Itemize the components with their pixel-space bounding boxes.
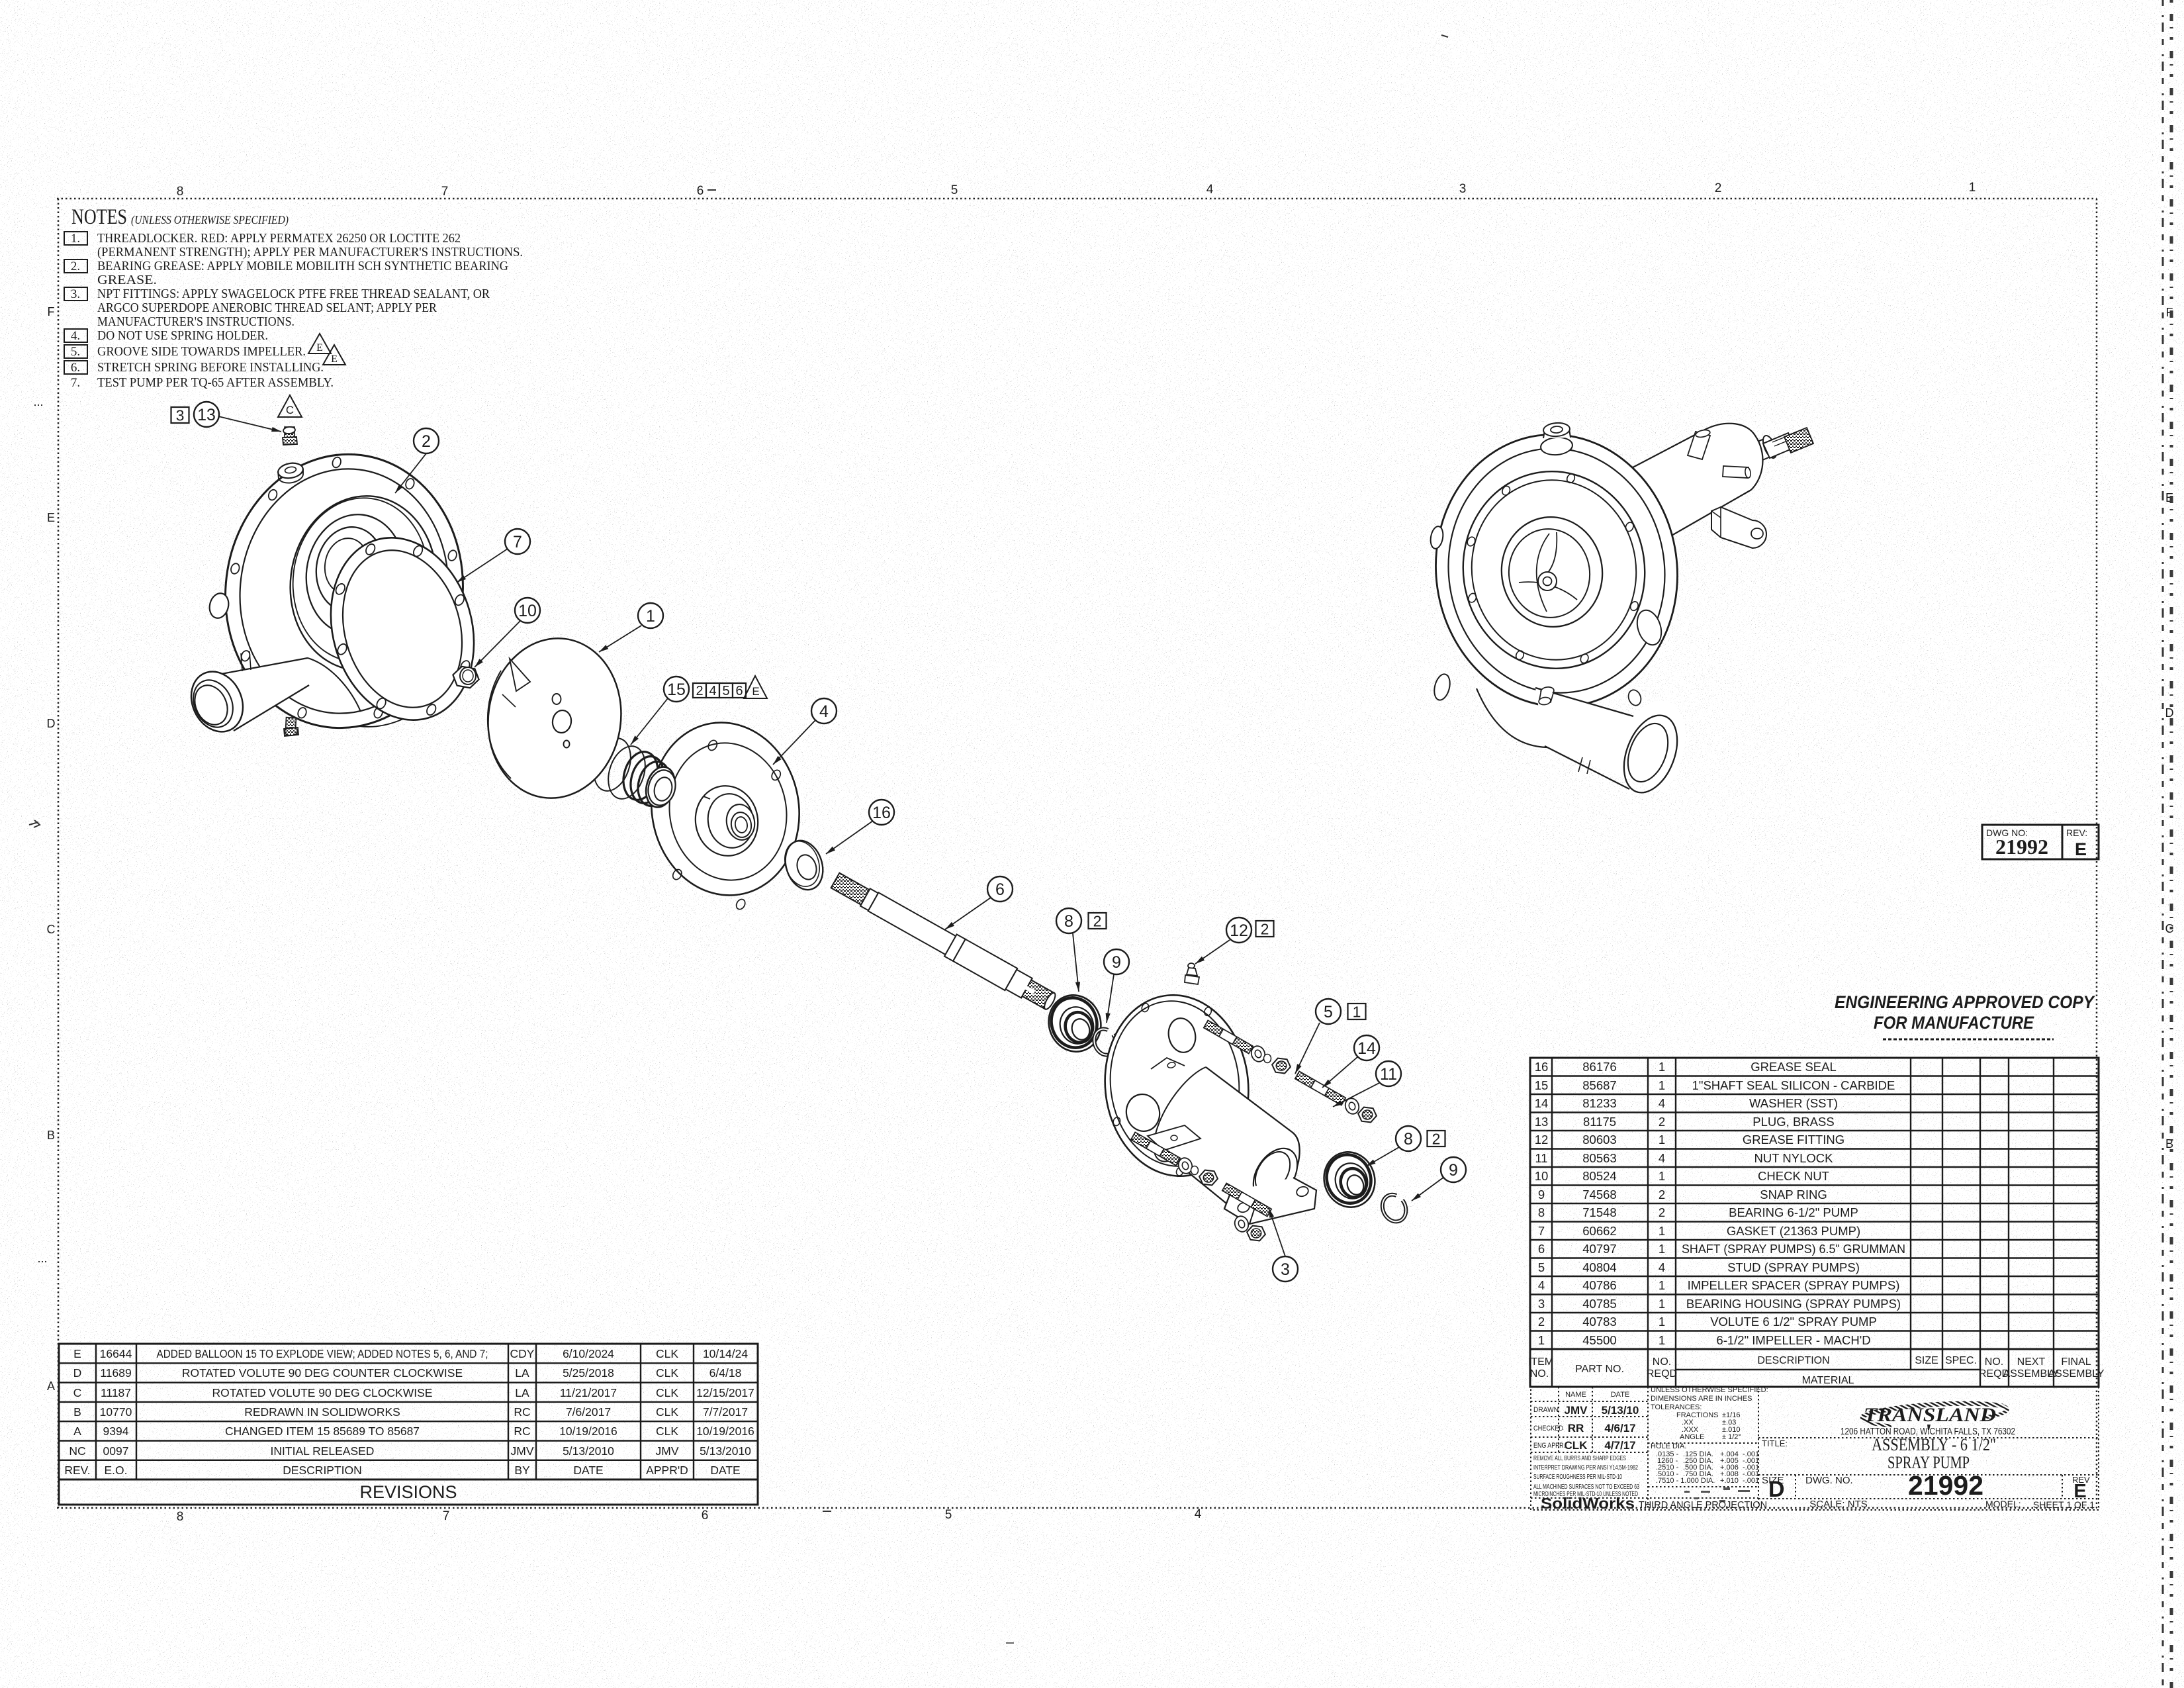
svg-text:6/4/18: 6/4/18 xyxy=(709,1366,742,1380)
svg-text:CLK: CLK xyxy=(656,1425,678,1438)
svg-text:D: D xyxy=(1768,1477,1785,1502)
svg-text:5.: 5. xyxy=(71,345,80,359)
svg-text:PLUG, BRASS: PLUG, BRASS xyxy=(1752,1115,1834,1129)
svg-text:74568: 74568 xyxy=(1582,1188,1616,1201)
svg-text:LA: LA xyxy=(515,1386,529,1399)
svg-text:8: 8 xyxy=(1404,1130,1413,1149)
svg-text:80524: 80524 xyxy=(1582,1169,1616,1183)
svg-text:16: 16 xyxy=(1535,1060,1549,1074)
svg-text:(UNLESS OTHERWISE SPECIFIED): (UNLESS OTHERWISE SPECIFIED) xyxy=(131,213,289,226)
svg-text:CLK: CLK xyxy=(656,1347,678,1360)
svg-text:3.: 3. xyxy=(71,287,80,301)
svg-text:DATE: DATE xyxy=(573,1464,603,1477)
svg-text:STUD (SPRAY PUMPS): STUD (SPRAY PUMPS) xyxy=(1727,1260,1860,1274)
svg-text:4: 4 xyxy=(1659,1096,1665,1110)
svg-text:GREASE SEAL: GREASE SEAL xyxy=(1751,1060,1837,1074)
svg-text:D: D xyxy=(47,717,56,730)
svg-text:80603: 80603 xyxy=(1582,1133,1616,1147)
svg-text:3: 3 xyxy=(1459,182,1467,196)
svg-text:7.: 7. xyxy=(71,376,80,390)
svg-text:NPT FITTINGS: APPLY SWAGELOCK: NPT FITTINGS: APPLY SWAGELOCK PTFE FREE … xyxy=(97,287,490,301)
svg-text:1: 1 xyxy=(1659,1224,1665,1238)
svg-text:6: 6 xyxy=(697,184,704,198)
svg-text:DATE: DATE xyxy=(1611,1391,1630,1399)
svg-text:INTERPRET DRAWING PER ANSI Y14: INTERPRET DRAWING PER ANSI Y14.5M-1982 xyxy=(1533,1464,1638,1472)
svg-text:11/21/2017: 11/21/2017 xyxy=(560,1386,617,1399)
svg-text:E.O.: E.O. xyxy=(104,1464,127,1477)
svg-text:5: 5 xyxy=(945,1508,952,1522)
svg-text:5: 5 xyxy=(951,183,958,197)
svg-text:3: 3 xyxy=(1538,1297,1545,1311)
svg-text:12: 12 xyxy=(1535,1133,1549,1147)
svg-text:ENGINEERING APPROVED COPY: ENGINEERING APPROVED COPY xyxy=(1835,992,2096,1012)
svg-text:NO.: NO. xyxy=(1985,1356,2003,1368)
svg-text:SCALE: NTS: SCALE: NTS xyxy=(1809,1499,1868,1510)
svg-text:1: 1 xyxy=(1659,1078,1665,1092)
svg-text:8: 8 xyxy=(177,1510,184,1524)
svg-text:12: 12 xyxy=(1230,921,1248,940)
svg-text:11: 11 xyxy=(1535,1151,1547,1165)
svg-text:1: 1 xyxy=(1353,1003,1361,1020)
svg-text:-.001: -.001 xyxy=(1743,1477,1759,1485)
svg-text:DESCRIPTION: DESCRIPTION xyxy=(1757,1355,1829,1366)
svg-text:DRAWN: DRAWN xyxy=(1533,1406,1559,1414)
svg-text:SPRAY PUMP: SPRAY PUMP xyxy=(1888,1453,1970,1472)
svg-text:SIZE: SIZE xyxy=(1915,1355,1938,1366)
svg-text:INITIAL RELEASED: INITIAL RELEASED xyxy=(271,1444,375,1458)
svg-text:11689: 11689 xyxy=(100,1366,131,1380)
svg-text:11: 11 xyxy=(1380,1065,1397,1084)
svg-text:11187: 11187 xyxy=(101,1386,131,1399)
svg-text:10/14/24: 10/14/24 xyxy=(703,1347,748,1360)
svg-text:81233: 81233 xyxy=(1582,1096,1616,1110)
svg-text:CLK: CLK xyxy=(656,1405,678,1419)
svg-text:2: 2 xyxy=(696,684,703,698)
svg-text:3: 3 xyxy=(176,406,185,424)
svg-text:THREADLOCKER. RED: APPLY PERMA: THREADLOCKER. RED: APPLY PERMATEX 26250 … xyxy=(97,231,461,246)
svg-text:ITEM: ITEM xyxy=(1528,1356,1553,1368)
svg-text:1: 1 xyxy=(1659,1242,1665,1256)
svg-text:A: A xyxy=(47,1380,55,1393)
svg-text:40786: 40786 xyxy=(1582,1278,1616,1292)
svg-text:85687: 85687 xyxy=(1582,1078,1616,1092)
svg-text:1"SHAFT SEAL SILICON - CARBIDE: 1"SHAFT SEAL SILICON - CARBIDE xyxy=(1692,1078,1895,1092)
svg-text:9394: 9394 xyxy=(103,1425,129,1438)
svg-text:JMV: JMV xyxy=(1565,1404,1588,1417)
svg-text:71548: 71548 xyxy=(1582,1205,1616,1219)
svg-text:NEXT: NEXT xyxy=(2017,1356,2046,1368)
svg-text:13: 13 xyxy=(1535,1115,1549,1129)
svg-text:E: E xyxy=(2075,839,2087,859)
svg-text:2: 2 xyxy=(1659,1205,1665,1219)
svg-text:4/6/17: 4/6/17 xyxy=(1604,1422,1635,1434)
svg-text:UNLESS OTHERWISE SPECIFIED:: UNLESS OTHERWISE SPECIFIED: xyxy=(1651,1386,1768,1394)
svg-text:5: 5 xyxy=(1324,1003,1333,1021)
svg-text:15: 15 xyxy=(1535,1078,1549,1092)
svg-text:6-1/2" IMPELLER - MACH'D: 6-1/2" IMPELLER - MACH'D xyxy=(1716,1333,1870,1347)
svg-text:APPR'D: APPR'D xyxy=(646,1464,688,1477)
svg-text:SURFACE ROUGHNESS PER MIL-STD-: SURFACE ROUGHNESS PER MIL-STD-10 xyxy=(1533,1473,1622,1481)
svg-text:1.: 1. xyxy=(71,232,80,246)
svg-text:DESCRIPTION: DESCRIPTION xyxy=(283,1464,362,1477)
svg-text:1: 1 xyxy=(1659,1333,1665,1347)
svg-text:GREASE.: GREASE. xyxy=(97,273,157,287)
svg-text:1: 1 xyxy=(1969,181,1976,195)
svg-text:BEARING 6-1/2" PUMP: BEARING 6-1/2" PUMP xyxy=(1729,1205,1858,1219)
svg-text:1: 1 xyxy=(1659,1060,1665,1074)
svg-text:5/25/2018: 5/25/2018 xyxy=(563,1366,614,1380)
svg-text:6.: 6. xyxy=(71,361,80,375)
svg-text:5: 5 xyxy=(1538,1260,1545,1274)
svg-text:REQD: REQD xyxy=(1647,1368,1677,1380)
svg-text:9: 9 xyxy=(1112,953,1121,972)
svg-text:TRANSLAND: TRANSLAND xyxy=(1864,1404,1996,1426)
svg-text:21992: 21992 xyxy=(1908,1470,1983,1501)
svg-text:GASKET (21363 PUMP): GASKET (21363 PUMP) xyxy=(1727,1224,1860,1238)
svg-text:PART NO.: PART NO. xyxy=(1575,1364,1624,1375)
svg-text:8: 8 xyxy=(1538,1205,1545,1219)
svg-text:ANGLE: ANGLE xyxy=(1680,1433,1704,1441)
svg-text:FOR MANUFACTURE: FOR MANUFACTURE xyxy=(1874,1013,2034,1033)
svg-text:BY: BY xyxy=(514,1464,530,1477)
svg-text:MANUFACTURER'S INSTRUCTIONS.: MANUFACTURER'S INSTRUCTIONS. xyxy=(97,314,295,329)
svg-text:2: 2 xyxy=(1715,181,1722,195)
svg-text:ADDED BALLOON 15 TO EXPLODE VI: ADDED BALLOON 15 TO EXPLODE VIEW; ADDED … xyxy=(157,1347,488,1360)
svg-text:40804: 40804 xyxy=(1582,1260,1616,1274)
svg-text:40783: 40783 xyxy=(1582,1315,1616,1329)
svg-text:NO.: NO. xyxy=(1653,1356,1671,1368)
svg-text:SHEET 1 OF 1: SHEET 1 OF 1 xyxy=(2033,1499,2095,1510)
svg-text:7: 7 xyxy=(443,1509,450,1523)
svg-text:E: E xyxy=(47,511,55,524)
svg-text:0097: 0097 xyxy=(103,1444,129,1458)
svg-text:SNAP RING: SNAP RING xyxy=(1760,1188,1827,1201)
svg-text:2: 2 xyxy=(1432,1130,1441,1147)
svg-text:9: 9 xyxy=(1449,1161,1458,1180)
svg-text:B: B xyxy=(47,1129,55,1142)
svg-text:13: 13 xyxy=(197,406,216,424)
svg-text:4: 4 xyxy=(1659,1260,1665,1274)
svg-text:7/7/2017: 7/7/2017 xyxy=(703,1405,748,1419)
svg-text:5/13/2010: 5/13/2010 xyxy=(700,1444,751,1458)
svg-text:CDY: CDY xyxy=(510,1347,535,1360)
svg-text:80563: 80563 xyxy=(1582,1151,1616,1165)
svg-text:NOTES: NOTES xyxy=(71,205,127,229)
svg-text:CHECK NUT: CHECK NUT xyxy=(1758,1169,1829,1183)
svg-text:10/19/2016: 10/19/2016 xyxy=(559,1425,617,1438)
svg-text:LA: LA xyxy=(515,1366,529,1380)
svg-text:E: E xyxy=(73,1347,81,1360)
svg-text:C: C xyxy=(47,923,56,936)
svg-text:GREASE FITTING: GREASE FITTING xyxy=(1743,1133,1844,1147)
svg-text:CLK: CLK xyxy=(656,1386,678,1399)
svg-text:.7510 - 1.000 DIA.: .7510 - 1.000 DIA. xyxy=(1656,1477,1715,1485)
svg-text:DIMENSIONS ARE IN INCHES: DIMENSIONS ARE IN INCHES xyxy=(1651,1395,1752,1403)
svg-text:+.010: +.010 xyxy=(1720,1477,1739,1485)
svg-text:1: 1 xyxy=(1659,1278,1665,1292)
svg-text:C: C xyxy=(73,1386,82,1399)
svg-text:1: 1 xyxy=(1538,1333,1545,1347)
svg-text:2: 2 xyxy=(1093,912,1102,929)
svg-text:1: 1 xyxy=(1659,1297,1665,1311)
svg-text:2: 2 xyxy=(1261,920,1269,937)
svg-text:2: 2 xyxy=(1538,1315,1545,1329)
svg-text:3: 3 xyxy=(1281,1260,1290,1279)
svg-text:4: 4 xyxy=(819,702,829,721)
svg-text:5: 5 xyxy=(722,684,729,698)
svg-text:FINAL: FINAL xyxy=(2061,1356,2091,1368)
svg-text:86176: 86176 xyxy=(1582,1060,1616,1074)
svg-text:16644: 16644 xyxy=(100,1347,132,1360)
svg-text:REV.: REV. xyxy=(64,1464,90,1477)
svg-text:RC: RC xyxy=(514,1425,530,1438)
svg-text:2: 2 xyxy=(1659,1188,1665,1201)
svg-text:F: F xyxy=(48,305,55,318)
svg-text:JMV: JMV xyxy=(656,1444,679,1458)
svg-text:RR: RR xyxy=(1568,1422,1584,1434)
svg-text:REVISIONS: REVISIONS xyxy=(359,1482,457,1502)
svg-text:CLK: CLK xyxy=(656,1366,678,1380)
svg-text:6: 6 xyxy=(1538,1242,1545,1256)
svg-text:D: D xyxy=(73,1366,82,1380)
svg-text:8: 8 xyxy=(177,185,184,199)
svg-text:45500: 45500 xyxy=(1582,1333,1616,1347)
svg-text:STRETCH SPRING BEFORE INSTALLI: STRETCH SPRING BEFORE INSTALLING. xyxy=(97,360,324,375)
svg-text:60662: 60662 xyxy=(1582,1224,1616,1238)
svg-text:SPEC.: SPEC. xyxy=(1945,1355,1977,1366)
svg-text:NO.: NO. xyxy=(1530,1368,1549,1380)
svg-text:TOLERANCES:: TOLERANCES: xyxy=(1651,1403,1702,1411)
svg-text:7: 7 xyxy=(513,533,522,551)
svg-text:7: 7 xyxy=(1538,1224,1545,1238)
svg-text:10/19/2016: 10/19/2016 xyxy=(696,1425,754,1438)
svg-text:IMPELLER SPACER (SPRAY PUMPS): IMPELLER SPACER (SPRAY PUMPS) xyxy=(1688,1278,1900,1292)
svg-text:6: 6 xyxy=(735,684,743,698)
svg-text:NAME: NAME xyxy=(1565,1391,1586,1399)
svg-text:E: E xyxy=(752,685,759,698)
svg-text:CLK: CLK xyxy=(1565,1439,1588,1452)
svg-text:4: 4 xyxy=(1538,1278,1545,1292)
svg-text:JMV: JMV xyxy=(511,1444,534,1458)
svg-text:12/15/2017: 12/15/2017 xyxy=(696,1386,754,1399)
svg-text:6: 6 xyxy=(995,880,1005,899)
svg-text:4.: 4. xyxy=(71,329,80,343)
svg-text:14: 14 xyxy=(1357,1039,1376,1058)
svg-text:± 1/2°: ± 1/2° xyxy=(1722,1433,1741,1441)
svg-text:2.: 2. xyxy=(71,259,80,273)
svg-text:CHANGED ITEM 15 85689 TO 85687: CHANGED ITEM 15 85689 TO 85687 xyxy=(225,1425,420,1438)
svg-text:4/7/17: 4/7/17 xyxy=(1604,1439,1635,1452)
svg-text:ROTATED VOLUTE 90 DEG CLOCKWIS: ROTATED VOLUTE 90 DEG CLOCKWISE xyxy=(212,1386,433,1399)
svg-text:D: D xyxy=(2165,706,2174,720)
svg-text:2: 2 xyxy=(1659,1115,1665,1129)
svg-text:CHECKED: CHECKED xyxy=(1533,1425,1563,1432)
svg-text:HOLE DIA.: HOLE DIA. xyxy=(1651,1442,1686,1450)
svg-text:2: 2 xyxy=(422,432,431,451)
svg-text:E: E xyxy=(316,342,323,353)
svg-text:SHAFT (SPRAY PUMPS) 6.5" GRUMM: SHAFT (SPRAY PUMPS) 6.5" GRUMMAN xyxy=(1682,1242,1905,1256)
svg-text:1: 1 xyxy=(1659,1315,1665,1329)
svg-text:6: 6 xyxy=(702,1509,709,1523)
svg-text:TITLE:: TITLE: xyxy=(1762,1438,1788,1448)
svg-text:14: 14 xyxy=(1535,1096,1549,1110)
svg-text:TEST PUMP PER TQ-65 AFTER ASSE: TEST PUMP PER TQ-65 AFTER ASSEMBLY. xyxy=(97,375,334,390)
svg-text:15: 15 xyxy=(667,680,686,699)
svg-text:E: E xyxy=(331,353,338,365)
svg-text:9: 9 xyxy=(1538,1188,1545,1201)
svg-text:16: 16 xyxy=(872,804,891,822)
svg-text:C: C xyxy=(286,404,294,416)
svg-text:GROOVE SIDE TOWARDS IMPELLER.: GROOVE SIDE TOWARDS IMPELLER. xyxy=(97,344,306,359)
svg-text:REMOVE ALL BURRS AND SHARP EDG: REMOVE ALL BURRS AND SHARP EDGES xyxy=(1533,1454,1626,1462)
svg-text:7: 7 xyxy=(441,185,449,199)
svg-text:6/10/2024: 6/10/2024 xyxy=(563,1347,614,1360)
svg-text:NUT NYLOCK: NUT NYLOCK xyxy=(1754,1151,1834,1165)
svg-text:4: 4 xyxy=(709,684,716,698)
svg-text:1: 1 xyxy=(1659,1133,1665,1147)
svg-text:10: 10 xyxy=(518,602,537,620)
svg-text:21992: 21992 xyxy=(1995,835,2048,859)
svg-text:ENG APPR.: ENG APPR. xyxy=(1533,1442,1565,1450)
svg-text:NC: NC xyxy=(69,1444,85,1458)
svg-text:10: 10 xyxy=(1535,1169,1549,1183)
svg-text:A: A xyxy=(73,1425,81,1438)
svg-text:REV:: REV: xyxy=(2066,827,2087,838)
svg-text:4: 4 xyxy=(1195,1507,1202,1521)
svg-text:DATE: DATE xyxy=(710,1464,740,1477)
svg-text:DO NOT USE SPRING HOLDER.: DO NOT USE SPRING HOLDER. xyxy=(97,328,268,343)
svg-text:BEARING GREASE: APPLY MOBILE M: BEARING GREASE: APPLY MOBILE MOBILITH SC… xyxy=(97,259,508,273)
svg-text:THIRD ANGLE PROJECTION: THIRD ANGLE PROJECTION xyxy=(1639,1500,1767,1511)
svg-text:B: B xyxy=(73,1405,81,1419)
svg-text:5/13/2010: 5/13/2010 xyxy=(563,1444,614,1458)
svg-text:8: 8 xyxy=(1064,912,1073,931)
svg-text:REDRAWN IN SOLIDWORKS: REDRAWN IN SOLIDWORKS xyxy=(244,1405,400,1419)
svg-text:MODEL:: MODEL: xyxy=(1985,1499,2021,1509)
svg-text:1: 1 xyxy=(1659,1169,1665,1183)
svg-text:SolidWorks: SolidWorks xyxy=(1541,1495,1635,1512)
svg-text:5/13/10: 5/13/10 xyxy=(1602,1404,1639,1417)
svg-text:ASSEMBLY: ASSEMBLY xyxy=(2048,1368,2104,1380)
svg-text:81175: 81175 xyxy=(1583,1115,1616,1129)
svg-text:BEARING HOUSING (SPRAY PUMPS): BEARING HOUSING (SPRAY PUMPS) xyxy=(1686,1297,1901,1311)
svg-text:4: 4 xyxy=(1206,183,1214,197)
svg-text:40785: 40785 xyxy=(1582,1297,1616,1311)
svg-text:RC: RC xyxy=(514,1405,530,1419)
svg-text:1: 1 xyxy=(646,607,655,626)
svg-text:7/6/2017: 7/6/2017 xyxy=(566,1405,611,1419)
svg-text:ASSEMBLY - 6 1/2": ASSEMBLY - 6 1/2" xyxy=(1872,1435,1996,1454)
svg-text:VOLUTE 6 1/2" SPRAY PUMP: VOLUTE 6 1/2" SPRAY PUMP xyxy=(1710,1315,1877,1329)
svg-text:DWG. NO.: DWG. NO. xyxy=(1805,1475,1853,1486)
svg-text:ROTATED VOLUTE 90 DEG COUNTER: ROTATED VOLUTE 90 DEG COUNTER CLOCKWISE xyxy=(182,1366,463,1380)
svg-text:40797: 40797 xyxy=(1582,1242,1616,1256)
svg-text:10770: 10770 xyxy=(100,1405,132,1419)
svg-text:MATERIAL: MATERIAL xyxy=(1802,1375,1854,1386)
svg-text:ARGCO SUPERDOPE ANEROBIC THREA: ARGCO SUPERDOPE ANEROBIC THREAD SELANT; … xyxy=(97,301,437,315)
svg-text:4: 4 xyxy=(1659,1151,1665,1165)
svg-text:(PERMANENT STRENGTH); APPLY PE: (PERMANENT STRENGTH); APPLY PER MANUFACT… xyxy=(97,245,523,259)
svg-text:WASHER (SST): WASHER (SST) xyxy=(1749,1096,1838,1110)
